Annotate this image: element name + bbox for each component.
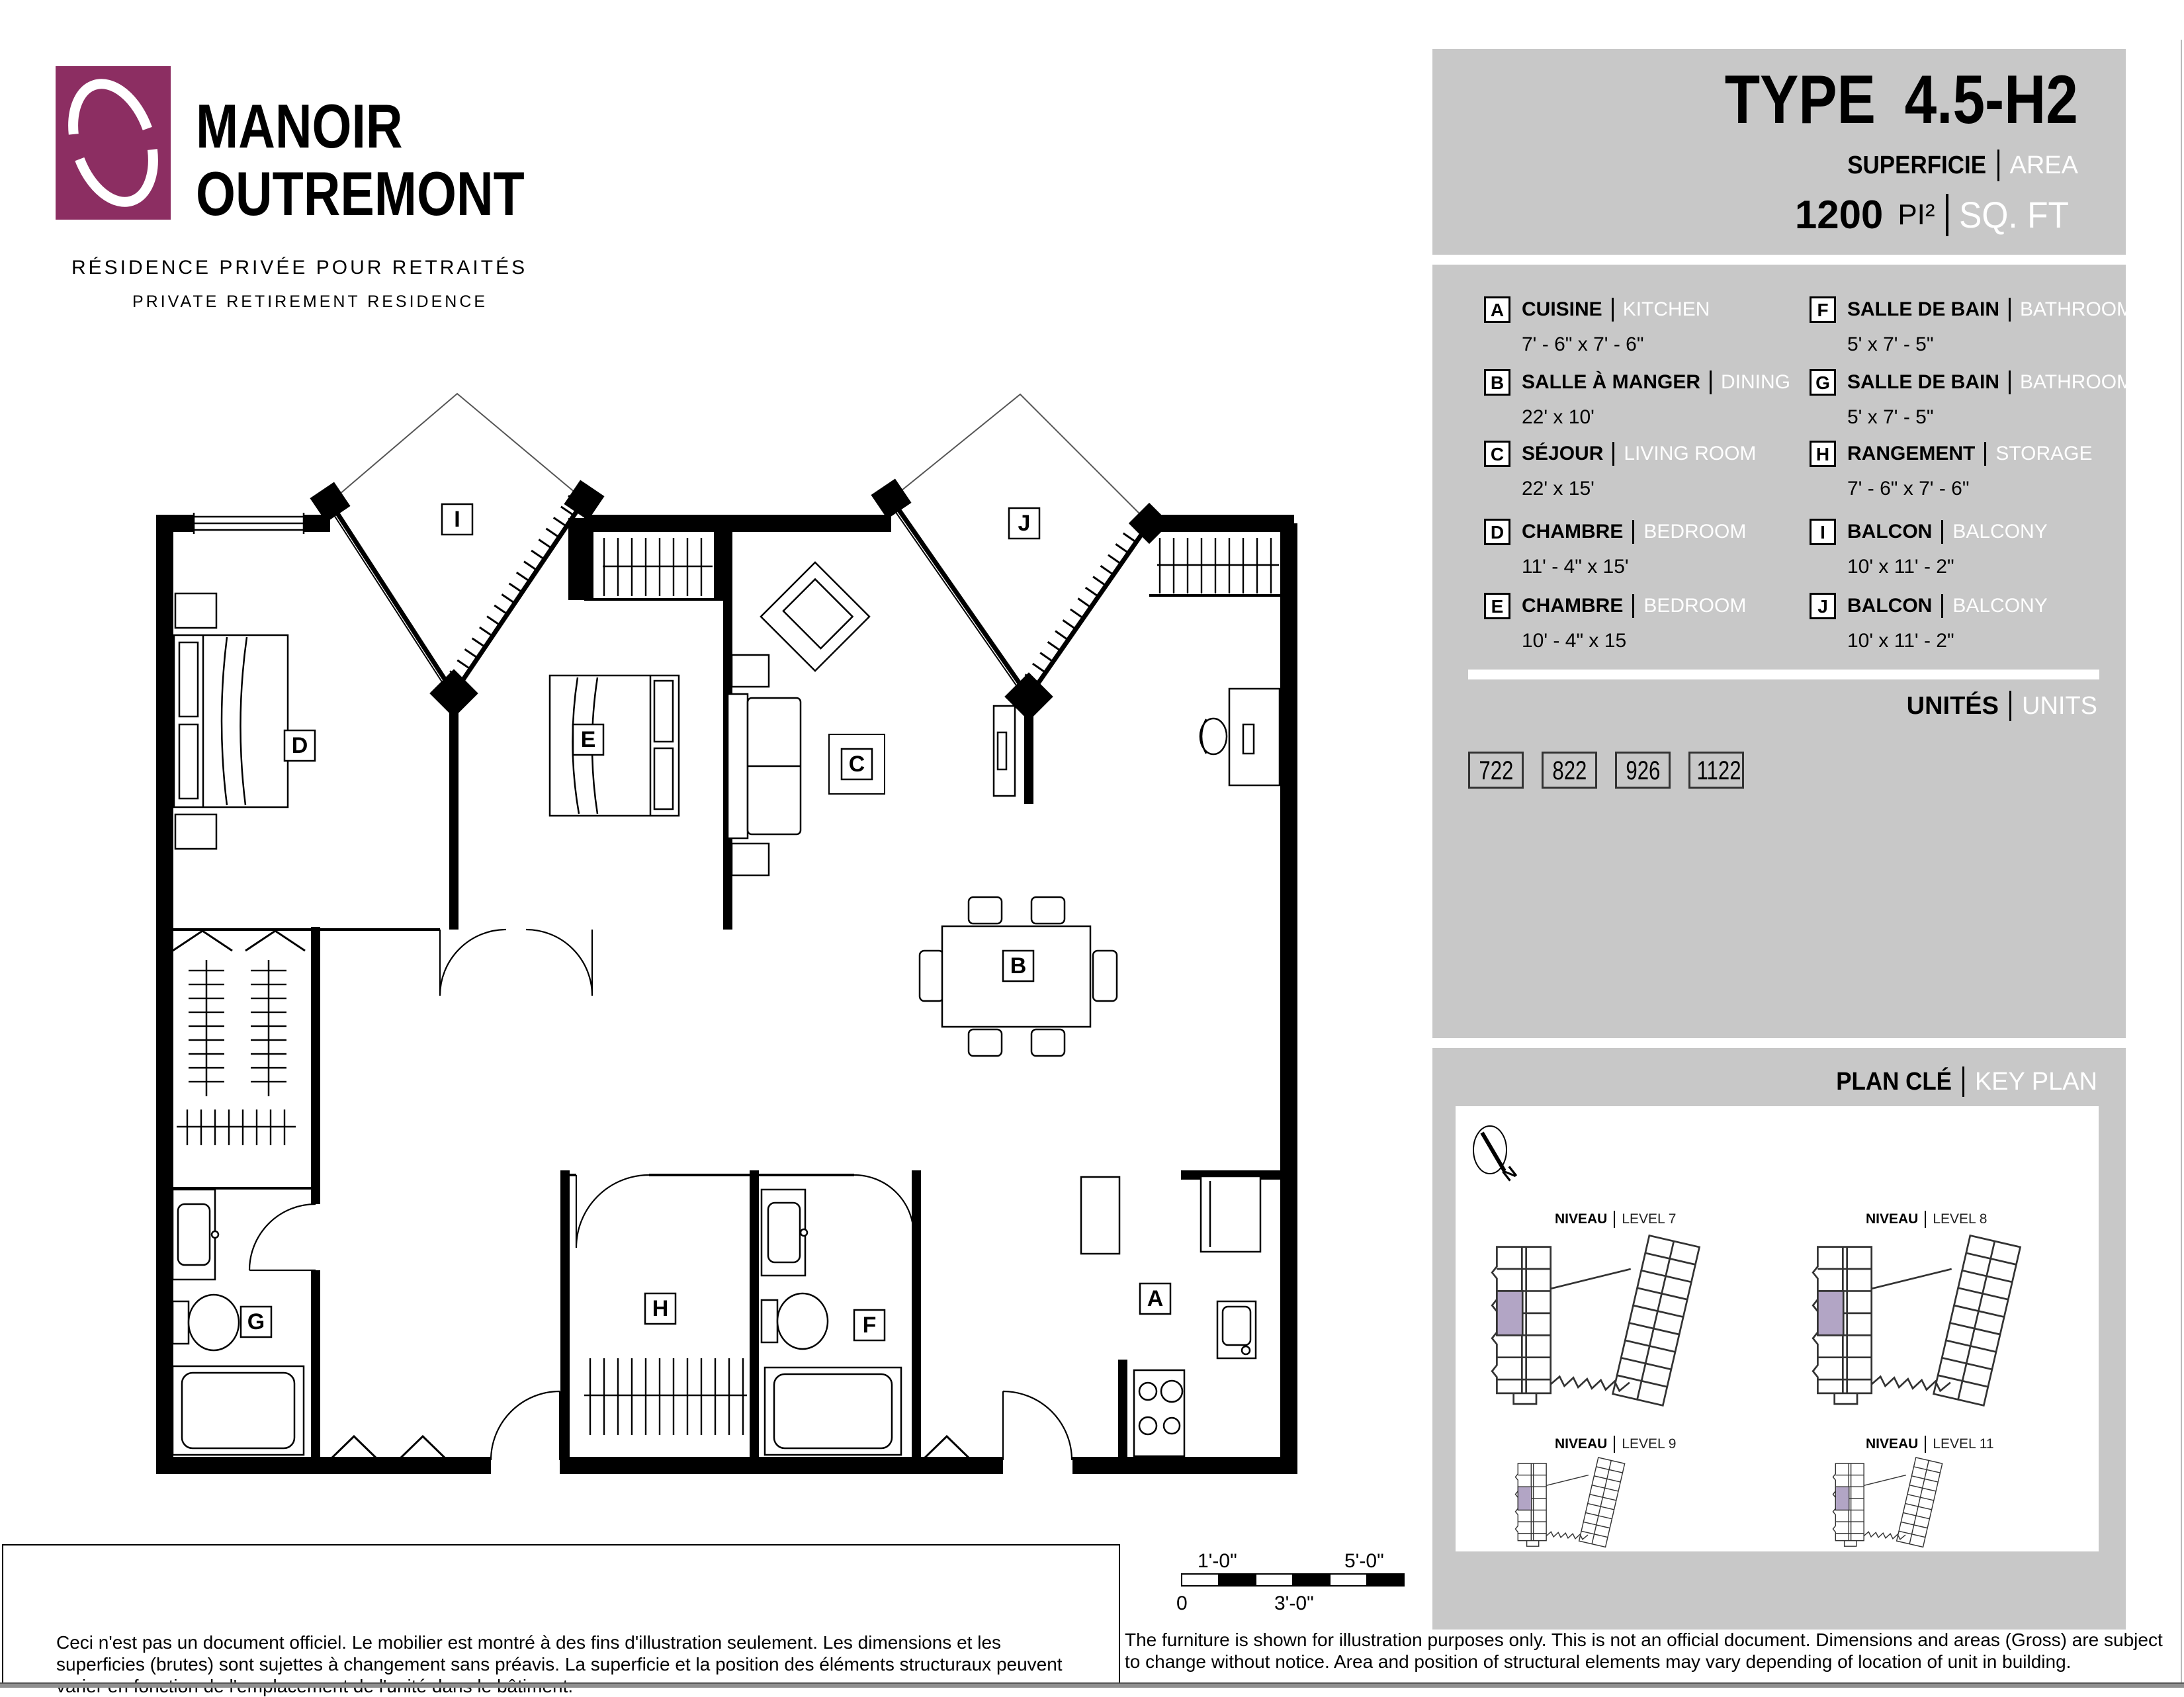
floorplan-sheet: { "colors":{"panel_gray":"#c8c8c8","logo…: [0, 0, 2184, 1688]
room-name-fr: BALCON: [1847, 521, 1932, 543]
floorplan-drawing: A B C D E F G H: [153, 380, 1301, 1475]
room-name-en: BALCONY: [1952, 595, 2047, 617]
room-name-fr: BALCON: [1847, 595, 1932, 617]
scale-segment: [1329, 1573, 1368, 1587]
area-label-en: AREA: [2010, 152, 2078, 180]
sofa: [728, 655, 801, 875]
bed-d: [174, 593, 288, 849]
keyplan-level7-minimap: [1479, 1232, 1730, 1411]
room-dimensions: 22' x 10': [1522, 406, 1594, 429]
bed-e: [550, 675, 679, 816]
room-name-en: BATHROOM: [2020, 298, 2133, 321]
type-header-panel: TYPE 4.5-H2 SUPERFICIE AREA 1200 PI² SQ.…: [1432, 49, 2126, 255]
type-value: 4.5-H2: [1905, 61, 2078, 140]
room-label-f: F: [854, 1310, 885, 1340]
room-dimensions: 7' - 6" x 7' - 6": [1522, 333, 1643, 356]
window-top-left: [194, 513, 304, 534]
room-label-e: E: [573, 724, 603, 755]
svg-text:J: J: [1018, 511, 1031, 536]
room-name-fr: CHAMBRE: [1522, 595, 1623, 617]
room-label-i: I: [442, 504, 472, 535]
keyplan-level7-label: NIVEAULEVEL 7: [1555, 1211, 1676, 1228]
room-label-j: J: [1009, 508, 1039, 539]
legend-letter-box: F: [1810, 296, 1836, 323]
room-name-en: LIVING ROOM: [1624, 443, 1756, 465]
room-name-fr: SÉJOUR: [1522, 443, 1603, 465]
svg-text:H: H: [652, 1296, 669, 1321]
legend-letter-box: C: [1484, 441, 1510, 467]
svg-text:F: F: [863, 1313, 877, 1338]
svg-text:D: D: [292, 733, 308, 758]
area-unit-fr: PI²: [1898, 198, 1935, 232]
room-name-fr: CHAMBRE: [1522, 521, 1623, 543]
brand-tagline-fr: RÉSIDENCE PRIVÉE POUR RETRAITÉS: [71, 257, 527, 279]
brand-block: MANOIR OUTREMONT RÉSIDENCE PRIVÉE POUR R…: [56, 66, 572, 331]
divider-bar: [1632, 520, 1634, 544]
brand-line1: MANOIR: [196, 93, 525, 160]
interior-walls: [165, 533, 1289, 1471]
superficie-row: SUPERFICIE AREA: [1835, 150, 2078, 181]
scale-label-0: 0: [1176, 1592, 1188, 1615]
closet-e-hangers: [603, 538, 713, 596]
svg-text:C: C: [849, 752, 865, 777]
legend-letter-box: G: [1810, 369, 1836, 396]
scale-segment: [1218, 1573, 1256, 1587]
legend-panel: A CUISINEKITCHEN 7' - 6" x 7' - 6" B SAL…: [1432, 265, 2126, 1038]
page-right-border: [2181, 40, 2182, 1682]
room-name-en: BALCONY: [1952, 521, 2047, 543]
divider-bar: [1941, 594, 1943, 618]
room-name-en: BEDROOM: [1643, 521, 1746, 543]
room-dimensions: 10' - 4" x 15: [1522, 630, 1626, 652]
divider-bar: [1710, 370, 1712, 394]
area-value: 1200: [1795, 192, 1883, 238]
keyplan-level8-minimap: [1800, 1232, 2051, 1411]
unit-type-heading: TYPE 4.5-H2: [1725, 61, 2078, 140]
divider-bar: [1612, 442, 1614, 466]
room-labels: A B C D E F G H: [241, 504, 1170, 1340]
divider-bar: [1962, 1066, 1964, 1097]
keyplan-level9-minimap: [1508, 1456, 1641, 1550]
scale-segment: [1181, 1573, 1219, 1587]
keyplan-panel: PLAN CLÉ KEY PLAN N: [1432, 1048, 2126, 1630]
scale-label-5ft: 5'-0": [1344, 1550, 1384, 1573]
legend-divider-bar: [1468, 670, 2099, 679]
svg-text:E: E: [581, 727, 596, 752]
room-dimensions: 7' - 6" x 7' - 6": [1847, 478, 1969, 500]
type-label: TYPE: [1725, 61, 1876, 140]
brand-tagline-en: PRIVATE RETIREMENT RESIDENCE: [132, 292, 488, 312]
legend-letter-box: D: [1484, 519, 1510, 545]
balcony-i-outline: [322, 394, 584, 693]
manoir-outremont-logo-icon: [56, 66, 171, 220]
area-value-row: 1200 PI² SQ. FT: [1795, 192, 2078, 238]
svg-text:I: I: [454, 507, 460, 532]
room-dimensions: 5' x 7' - 5": [1847, 333, 1934, 356]
room-dimensions: 10' x 11' - 2": [1847, 556, 1954, 578]
room-name-en: DINING: [1721, 371, 1790, 394]
legend-letter-box: J: [1810, 593, 1836, 619]
brand-name: MANOIR OUTREMONT: [196, 93, 525, 228]
unit-number-822: 822: [1542, 752, 1597, 789]
tv-unit: [994, 706, 1015, 796]
room-dimensions: 10' x 11' - 2": [1847, 630, 1954, 652]
room-label-g: G: [241, 1307, 271, 1337]
walkin-closet-hangers: [177, 960, 296, 1145]
divider-bar: [1612, 298, 1614, 322]
superficie-label-fr: SUPERFICIE: [1848, 152, 1987, 180]
scale-label-1ft: 1'-0": [1198, 1550, 1237, 1573]
divider-bar: [1632, 594, 1634, 618]
keyplan-level11-minimap: [1826, 1456, 1958, 1550]
room-name-en: KITCHEN: [1623, 298, 1710, 321]
room-dimensions: 5' x 7' - 5": [1847, 406, 1934, 429]
room-dimensions: 11' - 4" x 15': [1522, 556, 1629, 578]
closet-top-right-hangers: [1157, 538, 1279, 593]
svg-text:A: A: [1147, 1286, 1164, 1311]
balcony-j-outline: [883, 394, 1149, 697]
scale-segment: [1292, 1573, 1331, 1587]
legend-letter-box: A: [1484, 296, 1510, 323]
room-label-a: A: [1140, 1284, 1170, 1314]
divider-bar: [1941, 520, 1943, 544]
room-name-en: BEDROOM: [1643, 595, 1746, 617]
kitchen-appliances: [1081, 1176, 1260, 1456]
room-dimensions: 22' x 15': [1522, 478, 1594, 500]
disclaimer-box-fr: Ceci n'est pas un document officiel. Le …: [2, 1544, 1120, 1682]
storage-h-hangers: [584, 1358, 747, 1435]
page-bottom-bar: [0, 1682, 2184, 1688]
keyplan-canvas: N NIVEAULEVEL 7: [1456, 1106, 2099, 1551]
room-name-fr: CUISINE: [1522, 298, 1602, 321]
room-label-h: H: [645, 1293, 676, 1324]
room-name-fr: SALLE DE BAIN: [1847, 298, 1999, 321]
area-unit-en: SQ. FT: [1959, 193, 2069, 236]
units-label-fr: UNITÉS: [1907, 692, 1999, 720]
svg-text:B: B: [1010, 953, 1027, 979]
keyplan-label-en: KEY PLAN: [1975, 1068, 2097, 1096]
room-name-en: BATHROOM: [2020, 371, 2133, 394]
legend-letter-box: E: [1484, 593, 1510, 619]
unit-number-722: 722: [1468, 752, 1524, 789]
legend-letter-box: H: [1810, 441, 1836, 467]
divider-bar: [1984, 442, 1986, 466]
keyplan-level9-label: NIVEAULEVEL 9: [1555, 1436, 1676, 1453]
bathroom-g-fixtures: [173, 1190, 304, 1455]
room-label-b: B: [1003, 951, 1033, 981]
keyplan-level8-label: NIVEAULEVEL 8: [1866, 1211, 1987, 1228]
divider-bar: [2009, 691, 2011, 721]
unit-number-926: 926: [1615, 752, 1671, 789]
keyplan-heading: PLAN CLÉ KEY PLAN: [1826, 1066, 2097, 1097]
legend-letter-box: I: [1810, 519, 1836, 545]
brand-line2: OUTREMONT: [196, 160, 525, 228]
divider-bar: [2009, 298, 2011, 322]
room-name-fr: RANGEMENT: [1847, 443, 1975, 465]
units-label-en: UNITS: [2022, 692, 2097, 720]
divider-bar: [2009, 370, 2011, 394]
armchair: [761, 562, 869, 671]
room-label-c: C: [829, 734, 885, 794]
keyplan-level11-label: NIVEAULEVEL 11: [1866, 1436, 1994, 1453]
room-name-fr: SALLE DE BAIN: [1847, 371, 1999, 394]
divider-bar: [1946, 194, 1948, 236]
keyplan-label-fr: PLAN CLÉ: [1836, 1068, 1952, 1096]
room-label-d: D: [284, 730, 315, 761]
scale-segment: [1366, 1573, 1405, 1587]
north-compass-icon: N: [1463, 1118, 1536, 1191]
divider-bar: [1997, 150, 1999, 181]
legend-letter-box: B: [1484, 369, 1510, 396]
room-name-en: STORAGE: [1995, 443, 2092, 465]
svg-text:G: G: [247, 1309, 265, 1334]
scale-segment: [1255, 1573, 1293, 1587]
scale-bar: 1'-0" 5'-0" 0 3'-0": [1171, 1532, 1416, 1618]
desk-and-chair: [1200, 689, 1280, 785]
unit-number-1122: 1122: [1688, 752, 1744, 789]
scale-label-3ft: 3'-0": [1274, 1592, 1314, 1615]
room-name-fr: SALLE À MANGER: [1522, 371, 1700, 394]
units-heading: UNITÉS UNITS: [1907, 691, 2097, 721]
disclaimer-text-en: The furniture is shown for illustration …: [1125, 1629, 2167, 1673]
